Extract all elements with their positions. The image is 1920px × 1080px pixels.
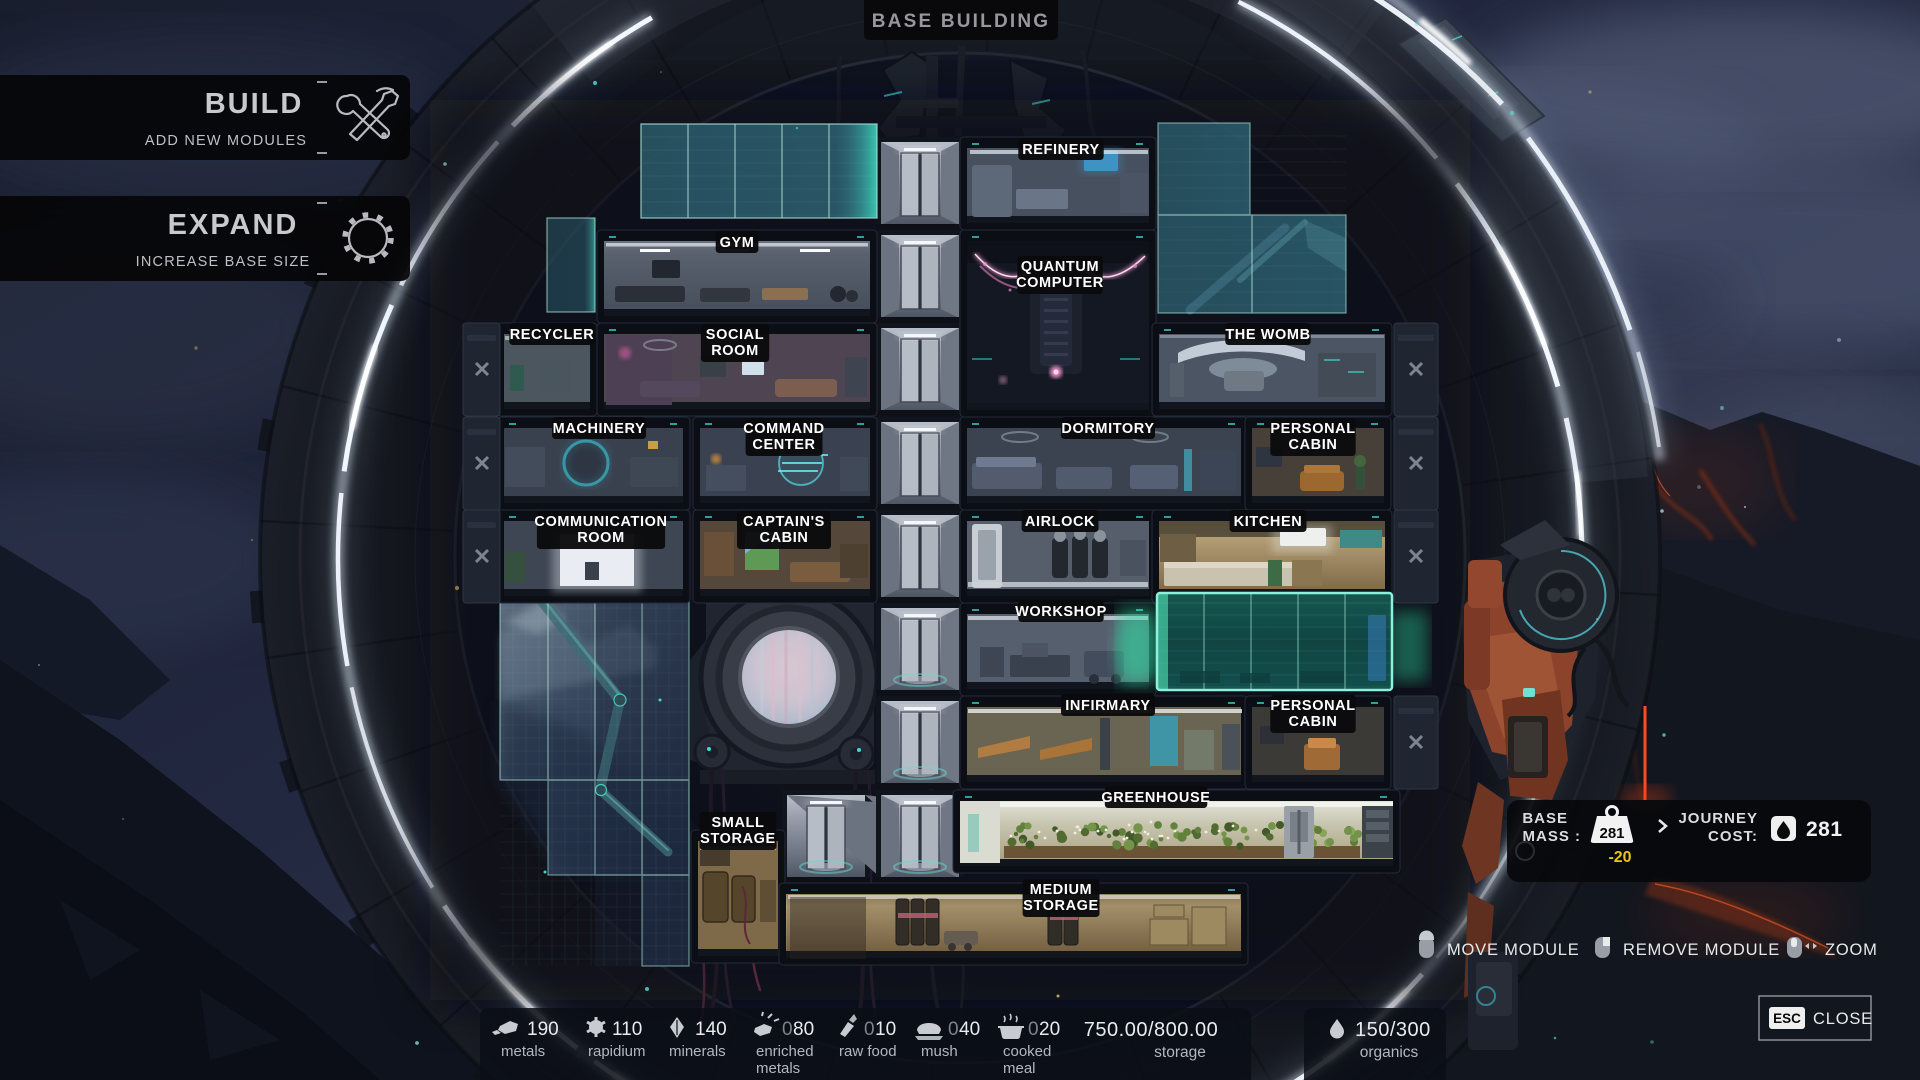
svg-text:THE WOMB: THE WOMB: [1225, 327, 1310, 343]
svg-text:0: 0: [782, 1019, 793, 1040]
svg-text:PERSONAL: PERSONAL: [1270, 698, 1355, 714]
svg-text:EXPAND: EXPAND: [168, 209, 299, 241]
svg-text:BASE BUILDING: BASE BUILDING: [872, 11, 1051, 32]
svg-text:metals: metals: [756, 1060, 800, 1077]
svg-text:QUANTUM: QUANTUM: [1021, 259, 1099, 275]
svg-text:CABIN: CABIN: [1289, 437, 1338, 453]
svg-text:CLOSE: CLOSE: [1813, 1010, 1873, 1028]
svg-text:COMMAND: COMMAND: [743, 421, 825, 437]
svg-text:organics: organics: [1360, 1044, 1419, 1061]
svg-text:cooked: cooked: [1003, 1043, 1051, 1060]
svg-text:-20: -20: [1608, 849, 1631, 866]
svg-text:750.00/800.00: 750.00/800.00: [1084, 1019, 1218, 1041]
svg-text:INFIRMARY: INFIRMARY: [1065, 698, 1150, 714]
svg-text:40: 40: [959, 1019, 980, 1040]
svg-text:150/300: 150/300: [1355, 1019, 1431, 1041]
svg-text:80: 80: [793, 1019, 814, 1040]
svg-text:ZOOM: ZOOM: [1825, 941, 1878, 959]
svg-text:0: 0: [948, 1019, 959, 1040]
svg-text:SMALL: SMALL: [712, 815, 765, 831]
svg-text:minerals: minerals: [669, 1043, 726, 1060]
svg-text:ESC: ESC: [1773, 1011, 1801, 1026]
svg-text:COMPUTER: COMPUTER: [1016, 275, 1104, 291]
svg-text:0: 0: [864, 1019, 875, 1040]
svg-text:enriched: enriched: [756, 1043, 814, 1060]
svg-text:DORMITORY: DORMITORY: [1061, 421, 1154, 437]
svg-text:20: 20: [1039, 1019, 1060, 1040]
svg-text:KITCHEN: KITCHEN: [1234, 514, 1303, 530]
svg-text:GYM: GYM: [720, 235, 755, 251]
svg-text:storage: storage: [1154, 1044, 1206, 1061]
svg-text:mush: mush: [921, 1043, 958, 1060]
svg-text:SOCIAL: SOCIAL: [706, 327, 764, 343]
svg-text:CENTER: CENTER: [752, 437, 815, 453]
svg-text:GREENHOUSE: GREENHOUSE: [1101, 790, 1210, 806]
svg-text:AIRLOCK: AIRLOCK: [1025, 514, 1095, 530]
svg-text:WORKSHOP: WORKSHOP: [1015, 604, 1107, 620]
svg-text:CAPTAIN'S: CAPTAIN'S: [743, 514, 825, 530]
svg-text:raw food: raw food: [839, 1043, 897, 1060]
svg-text:meal: meal: [1003, 1060, 1036, 1077]
svg-text:PERSONAL: PERSONAL: [1270, 421, 1355, 437]
svg-text:STORAGE: STORAGE: [700, 831, 776, 847]
svg-text:COMMUNICATION: COMMUNICATION: [534, 514, 667, 530]
svg-text:INCREASE BASE SIZE: INCREASE BASE SIZE: [136, 254, 311, 270]
svg-text:10: 10: [875, 1019, 896, 1040]
svg-text:STORAGE: STORAGE: [1023, 898, 1099, 914]
svg-text:0: 0: [1028, 1019, 1039, 1040]
svg-text:ROOM: ROOM: [711, 343, 759, 359]
svg-text:MEDIUM: MEDIUM: [1030, 882, 1092, 898]
svg-text:metals: metals: [501, 1043, 545, 1060]
svg-text:REFINERY: REFINERY: [1022, 142, 1100, 158]
svg-text:JOURNEY: JOURNEY: [1678, 810, 1758, 827]
svg-text:rapidium: rapidium: [588, 1043, 646, 1060]
svg-text:MASS :: MASS :: [1523, 828, 1582, 845]
svg-text:110: 110: [612, 1019, 642, 1040]
svg-text:CABIN: CABIN: [760, 530, 809, 546]
svg-text:REMOVE MODULE: REMOVE MODULE: [1623, 941, 1780, 959]
svg-text:ADD NEW MODULES: ADD NEW MODULES: [145, 133, 307, 149]
svg-text:MOVE MODULE: MOVE MODULE: [1447, 941, 1580, 959]
svg-text:281: 281: [1599, 825, 1624, 842]
svg-text:BUILD: BUILD: [205, 88, 304, 120]
svg-text:CABIN: CABIN: [1289, 714, 1338, 730]
svg-text:190: 190: [527, 1019, 559, 1040]
svg-text:ROOM: ROOM: [577, 530, 625, 546]
svg-text:BASE: BASE: [1522, 810, 1568, 827]
svg-text:RECYCLER: RECYCLER: [510, 327, 595, 343]
svg-text:COST:: COST:: [1708, 828, 1758, 845]
svg-text:MACHINERY: MACHINERY: [553, 421, 646, 437]
svg-text:140: 140: [695, 1019, 727, 1040]
svg-text:281: 281: [1806, 818, 1843, 841]
